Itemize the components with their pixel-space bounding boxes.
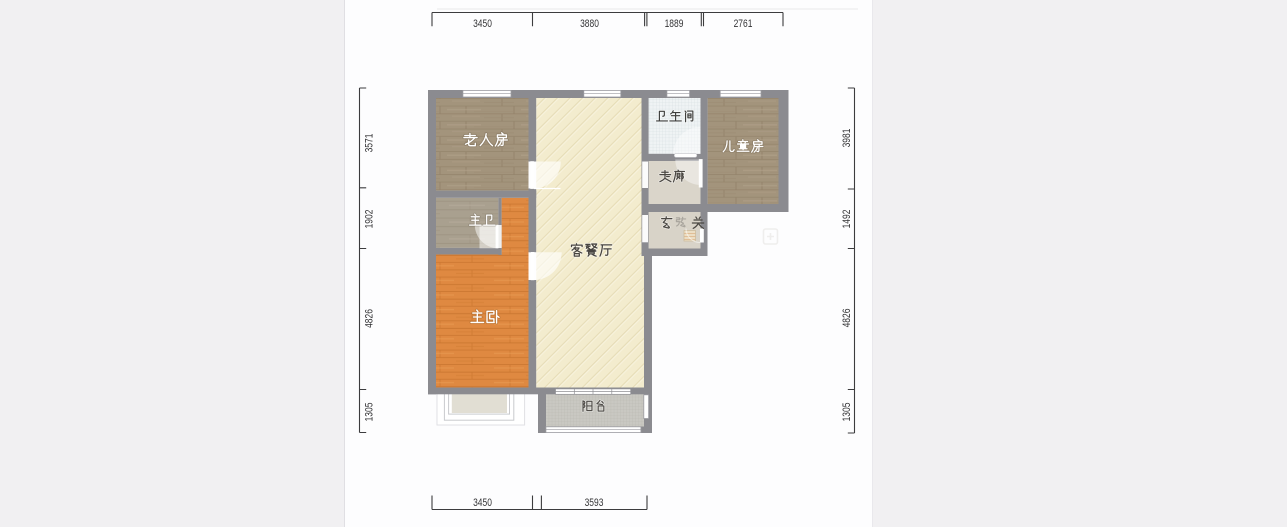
svg-text:2761: 2761 (734, 18, 753, 30)
svg-text:4826: 4826 (841, 309, 853, 328)
svg-text:4826: 4826 (364, 309, 376, 328)
svg-text:1889: 1889 (665, 18, 684, 30)
svg-text:1305: 1305 (364, 403, 376, 422)
svg-text:3450: 3450 (473, 497, 492, 509)
svg-text:3593: 3593 (585, 497, 604, 509)
svg-text:3981: 3981 (841, 129, 853, 148)
svg-text:1492: 1492 (841, 210, 853, 229)
svg-text:3571: 3571 (364, 134, 376, 153)
svg-text:1305: 1305 (841, 403, 853, 422)
svg-text:1902: 1902 (364, 210, 376, 229)
svg-text:3450: 3450 (473, 18, 492, 30)
svg-text:3880: 3880 (580, 18, 599, 30)
